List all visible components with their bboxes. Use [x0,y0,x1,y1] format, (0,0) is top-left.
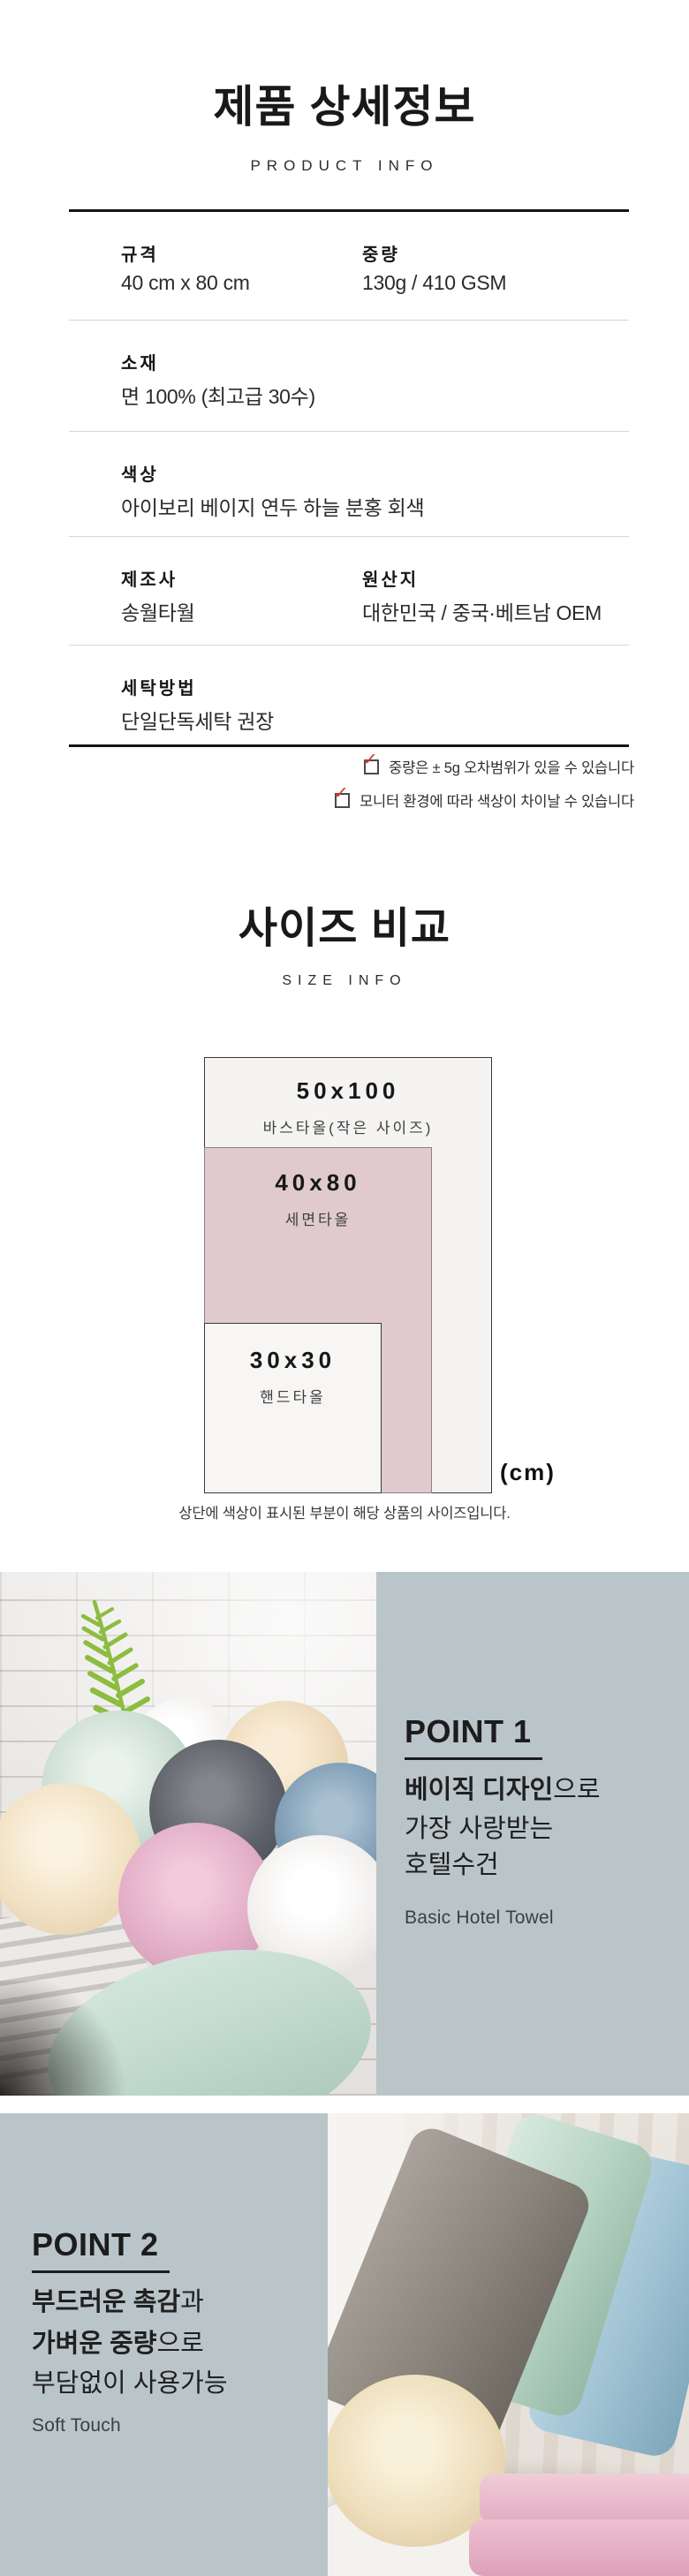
spec-label-maker: 제조사 [121,565,178,591]
unit-label: (cm) [500,1459,556,1486]
spec-label-washing: 세탁방법 [121,674,197,699]
spec-value-washing: 단일단독세탁 권장 [121,705,274,735]
point1-caption: Basic Hotel Towel [405,1907,554,1929]
point1-line3: 호텔수건 [405,1853,499,1878]
notes-list: ✓ 중량은 ± 5g 오차범위가 있을 수 있습니다 ✓ 모니터 환경에 따라 … [335,756,634,823]
size-comparison-diagram: 50x100 바스타올(작은 사이즈) 40x80 세면타올 30x30 핸드타… [204,1057,492,1493]
stacked-towels-photo [328,2113,689,2576]
point2-line1: 부드러운 촉감과 [32,2290,204,2315]
product-detail-page: 제품 상세정보 PRODUCT INFO 규격 40 cm x 80 cm 중량… [0,0,689,2576]
spec-label-material: 소재 [121,349,159,374]
spec-row-maker-origin: 제조사 송월타월 원산지 대한민국 / 중국·베트남 OEM [69,537,629,646]
shadow-corner [0,1981,132,2096]
spec-row-washing: 세탁방법 단일단독세탁 권장 [69,646,629,744]
point2-heading: POINT 2 [32,2226,170,2273]
hand-towel-box: 30x30 핸드타올 [204,1323,382,1493]
point1-heading: POINT 1 [405,1713,542,1760]
spec-row-size-weight: 규격 40 cm x 80 cm 중량 130g / 410 GSM [69,212,629,321]
note-weight-tolerance: ✓ 중량은 ± 5g 오차범위가 있을 수 있습니다 [335,756,634,777]
product-info-title: 제품 상세정보 [0,83,689,132]
point1-line2: 가장 사랑받는 [405,1817,553,1842]
spec-value-origin: 대한민국 / 중국·베트남 OEM [362,596,602,626]
note-monitor-color: ✓ 모니터 환경에 따라 색상이 차이날 수 있습니다 [335,789,634,811]
point1-panel: POINT 1 베이직 디자인으로 가장 사랑받는 호텔수건 Basic Hot… [376,1572,689,2096]
point1-line1: 베이직 디자인으로 [405,1778,601,1803]
spec-table: 규격 40 cm x 80 cm 중량 130g / 410 GSM 소재 면 … [69,209,629,747]
product-info-subtitle: PRODUCT INFO [0,157,689,175]
spec-row-material: 소재 면 100% (최고급 30수) [69,321,629,432]
spec-row-color: 색상 아이보리 베이지 연두 하늘 분홍 회색 [69,432,629,537]
folded-towel-pink-bottom [469,2519,689,2576]
point2-line2: 가벼운 중량으로 [32,2331,204,2357]
spec-label-color: 색상 [121,460,159,486]
spec-value-size: 40 cm x 80 cm [121,271,250,295]
spec-value-maker: 송월타월 [121,596,194,626]
size-caption: 상단에 색상이 표시된 부분이 해당 상품의 사이즈입니다. [0,1501,689,1522]
spec-value-color: 아이보리 베이지 연두 하늘 분홍 회색 [121,491,424,521]
point2-caption: Soft Touch [32,2415,121,2436]
spec-value-material: 면 100% (최고급 30수) [121,380,315,410]
spec-label-size: 규격 [121,240,159,266]
spec-value-weight: 130g / 410 GSM [362,271,506,295]
spec-label-origin: 원산지 [362,565,419,591]
point2-panel: POINT 2 부드러운 촉감과 가벼운 중량으로 부담없이 사용가능 Soft… [0,2113,328,2576]
check-icon: ✓ [364,759,379,774]
point2-line3: 부담없이 사용가능 [32,2371,228,2397]
note-text: 모니터 환경에 따라 색상이 차이날 수 있습니다 [360,789,634,811]
size-info-title: 사이즈 비교 [0,906,689,953]
note-text: 중량은 ± 5g 오차범위가 있을 수 있습니다 [389,756,634,777]
bath-towel-label: 50x100 바스타올(작은 사이즈) [205,1077,491,1137]
point1-section: POINT 1 베이직 디자인으로 가장 사랑받는 호텔수건 Basic Hot… [0,1572,689,2096]
folded-towel-pink-top [480,2474,689,2525]
check-icon: ✓ [335,793,350,808]
size-info-subtitle: SIZE INFO [0,973,689,989]
towel-basket-photo [0,1572,376,2096]
point2-section: POINT 2 부드러운 촉감과 가벼운 중량으로 부담없이 사용가능 Soft… [0,2113,689,2576]
spec-label-weight: 중량 [362,240,400,266]
